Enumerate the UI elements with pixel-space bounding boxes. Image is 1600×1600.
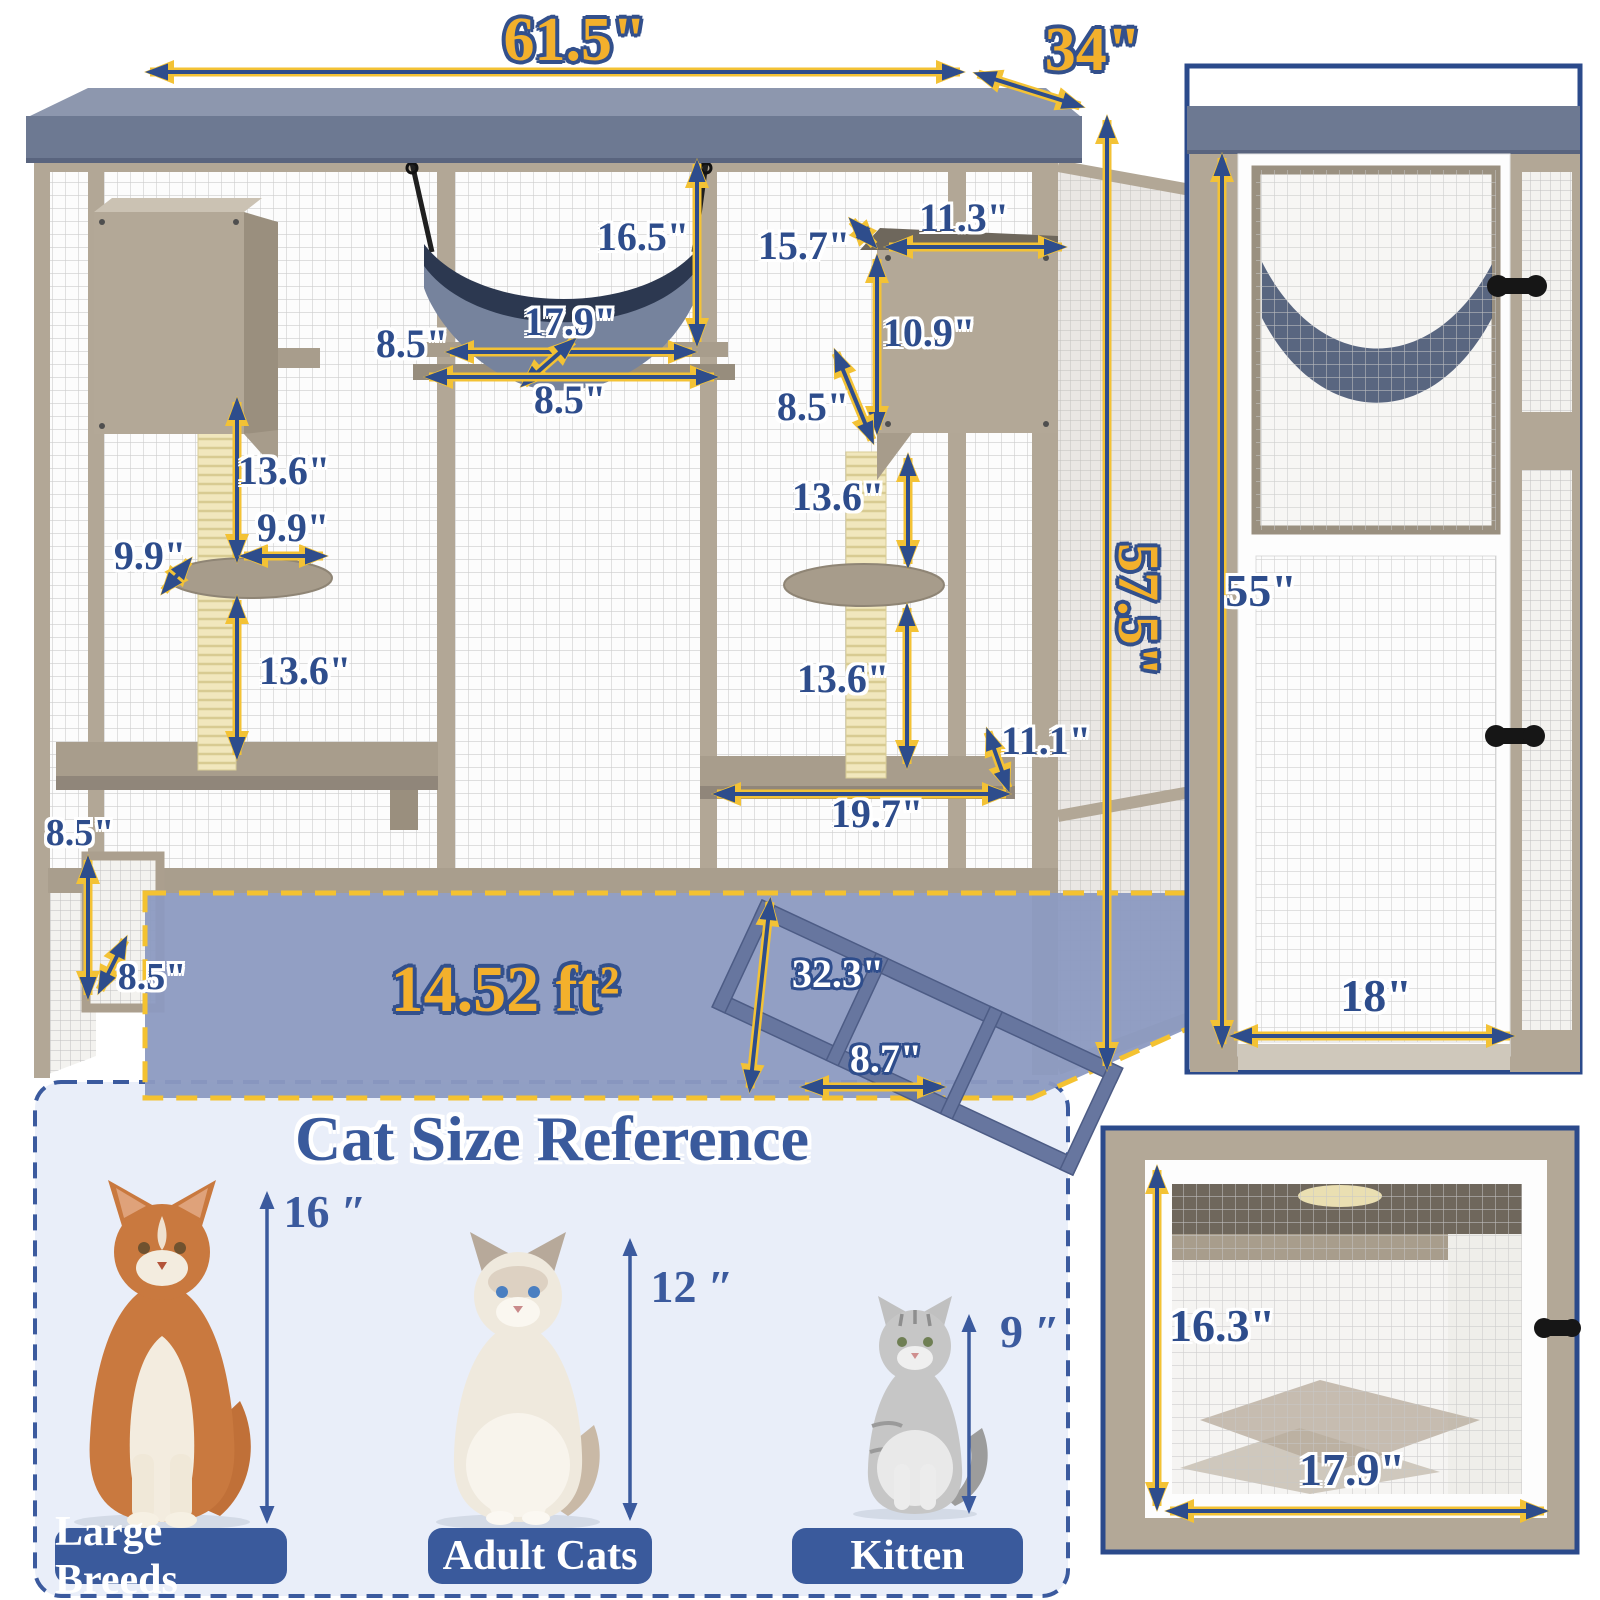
cat-height-adult-cats: 12 ″ [651, 1264, 734, 1310]
dim-overall-width: 61.5" [504, 9, 647, 71]
dim-left-post-lower: 13.6" [259, 651, 351, 691]
dim-door-height: 16.3" [1169, 1303, 1275, 1349]
dim-floor-area: 14.52 ft² [391, 957, 620, 1023]
cat-label-adult-cats: Adult Cats [428, 1528, 652, 1584]
dim-bottom-shelf-depth: 11.1" [1001, 721, 1091, 761]
dim-right-shelf-depth: 8.5" [777, 387, 849, 427]
dim-right-box-width: 11.3" [919, 198, 1009, 238]
dim-door-width: 17.9" [1299, 1447, 1405, 1493]
cat-label-kitten: Kitten [792, 1528, 1023, 1584]
dim-left-platform-width: 9.9" [257, 508, 329, 548]
dim-left-door-width: 8.5" [118, 958, 187, 996]
dim-hammock-width: 17.9" [524, 302, 616, 342]
dim-right-box-height: 10.9" [883, 313, 975, 353]
left-cubby-box [94, 198, 278, 472]
cat-height-large-breeds: 16 ″ [284, 1189, 367, 1235]
dim-hammock-shelf-width: 8.5" [534, 380, 606, 420]
dim-left-platform-depth: 9.9" [114, 536, 186, 576]
cat-label-large-breeds: Large Breeds [55, 1528, 287, 1584]
dim-side-view-width: 18" [1340, 973, 1412, 1019]
dim-ramp-length: 32.3" [792, 954, 884, 994]
roof [26, 88, 1082, 163]
dim-ramp-width: 8.7" [850, 1039, 922, 1079]
dim-hammock-height: 16.5" [597, 217, 689, 257]
door-latch-icon [1534, 1318, 1581, 1338]
dim-hammock-shelf-depth: 8.5" [376, 324, 448, 364]
dim-side-view-height: 55" [1225, 568, 1297, 614]
dim-right-post-upper: 13.6" [792, 477, 884, 517]
dim-left-door-height: 8.5" [46, 814, 115, 852]
floor-area-highlight [145, 893, 1245, 1098]
dim-overall-height: 57.5" [1109, 543, 1167, 677]
dim-left-post-upper: 13.6" [238, 451, 330, 491]
dim-right-post-lower: 13.6" [797, 659, 889, 699]
catio-dimension-infographic: .au{stroke:#f3c235;stroke-width:9;fill:n… [0, 0, 1600, 1600]
dim-right-box-depth: 15.7" [758, 226, 850, 266]
dim-bottom-shelf-width: 19.7" [831, 794, 923, 834]
dim-overall-depth: 34" [1045, 19, 1141, 81]
cat-height-kitten: 9 ″ [1000, 1309, 1060, 1355]
cat-size-panel-title: Cat Size Reference [295, 1107, 809, 1171]
